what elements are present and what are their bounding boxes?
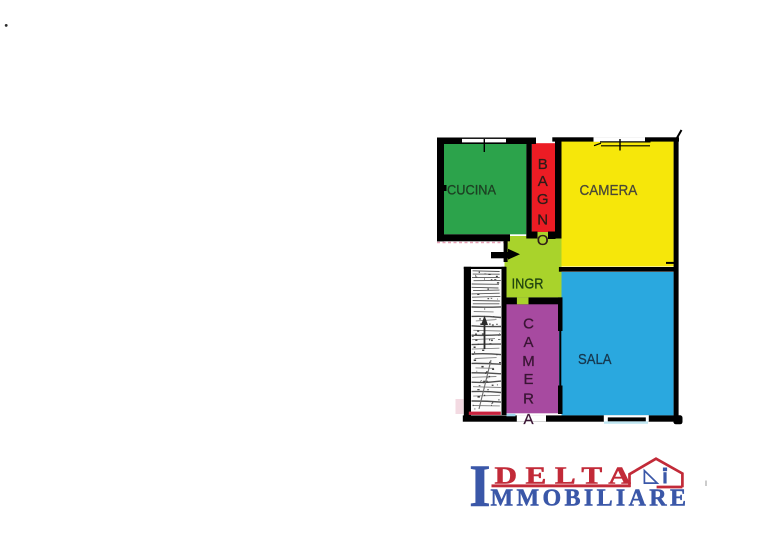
svg-text:A: A	[538, 173, 548, 190]
svg-text:M: M	[522, 353, 535, 370]
svg-text:A: A	[523, 334, 533, 351]
svg-text:R: R	[523, 391, 534, 408]
svg-text:A: A	[523, 411, 533, 428]
svg-text:I: I	[469, 454, 490, 520]
svg-text:MMOBILIARE: MMOBILIARE	[491, 486, 690, 512]
svg-text:INGR: INGR	[512, 276, 544, 293]
svg-text:CUCINA: CUCINA	[447, 181, 497, 197]
svg-text:N: N	[537, 211, 548, 228]
svg-text:E: E	[523, 371, 533, 388]
svg-text:B: B	[538, 156, 548, 173]
svg-text:G: G	[537, 191, 549, 208]
svg-text:O: O	[537, 232, 549, 249]
svg-text:CAMERA: CAMERA	[580, 182, 638, 199]
svg-text:SALA: SALA	[578, 352, 612, 368]
svg-text:C: C	[523, 316, 534, 333]
